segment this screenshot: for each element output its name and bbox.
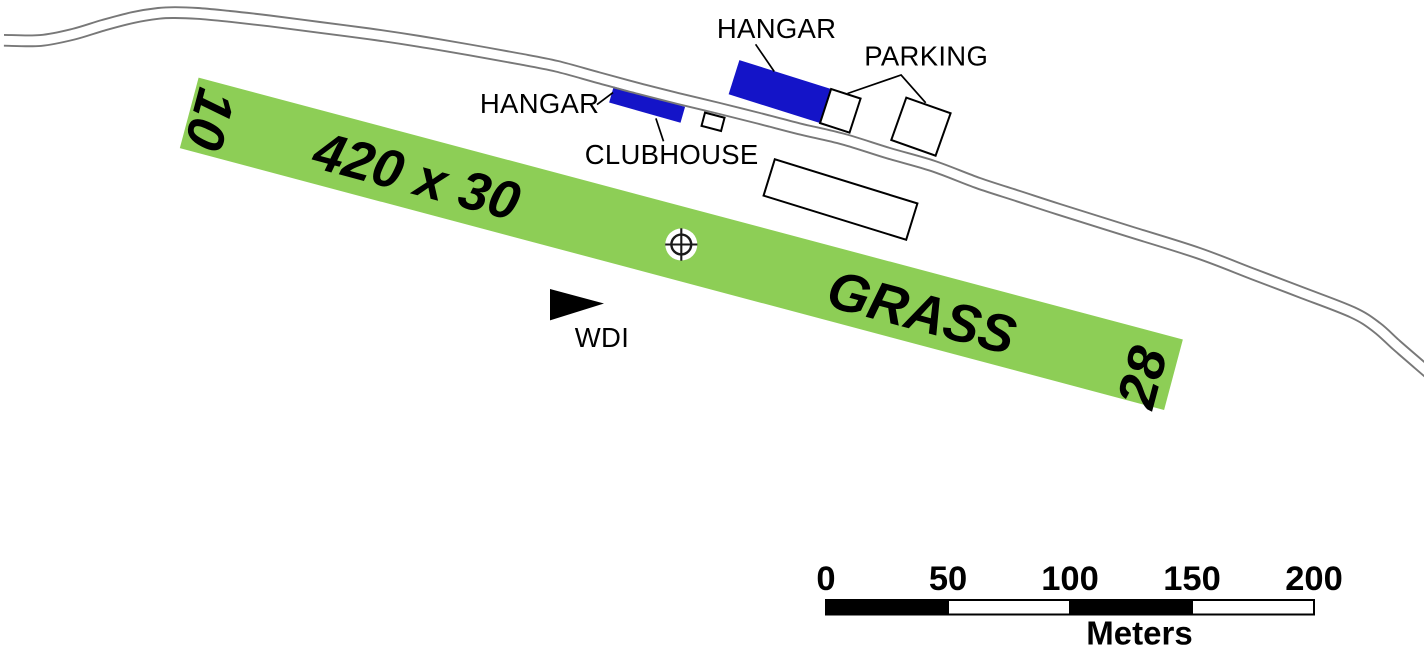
svg-text:PARKING: PARKING bbox=[864, 41, 988, 72]
svg-text:50: 50 bbox=[929, 560, 967, 598]
svg-text:CLUBHOUSE: CLUBHOUSE bbox=[585, 139, 759, 170]
svg-text:HANGAR: HANGAR bbox=[717, 13, 836, 44]
svg-text:200: 200 bbox=[1285, 560, 1343, 598]
svg-text:100: 100 bbox=[1041, 560, 1099, 598]
svg-text:Meters: Meters bbox=[1086, 615, 1192, 648]
svg-text:WDI: WDI bbox=[575, 322, 629, 353]
svg-text:150: 150 bbox=[1163, 560, 1221, 598]
svg-text:0: 0 bbox=[816, 560, 835, 598]
svg-text:HANGAR: HANGAR bbox=[480, 88, 599, 119]
